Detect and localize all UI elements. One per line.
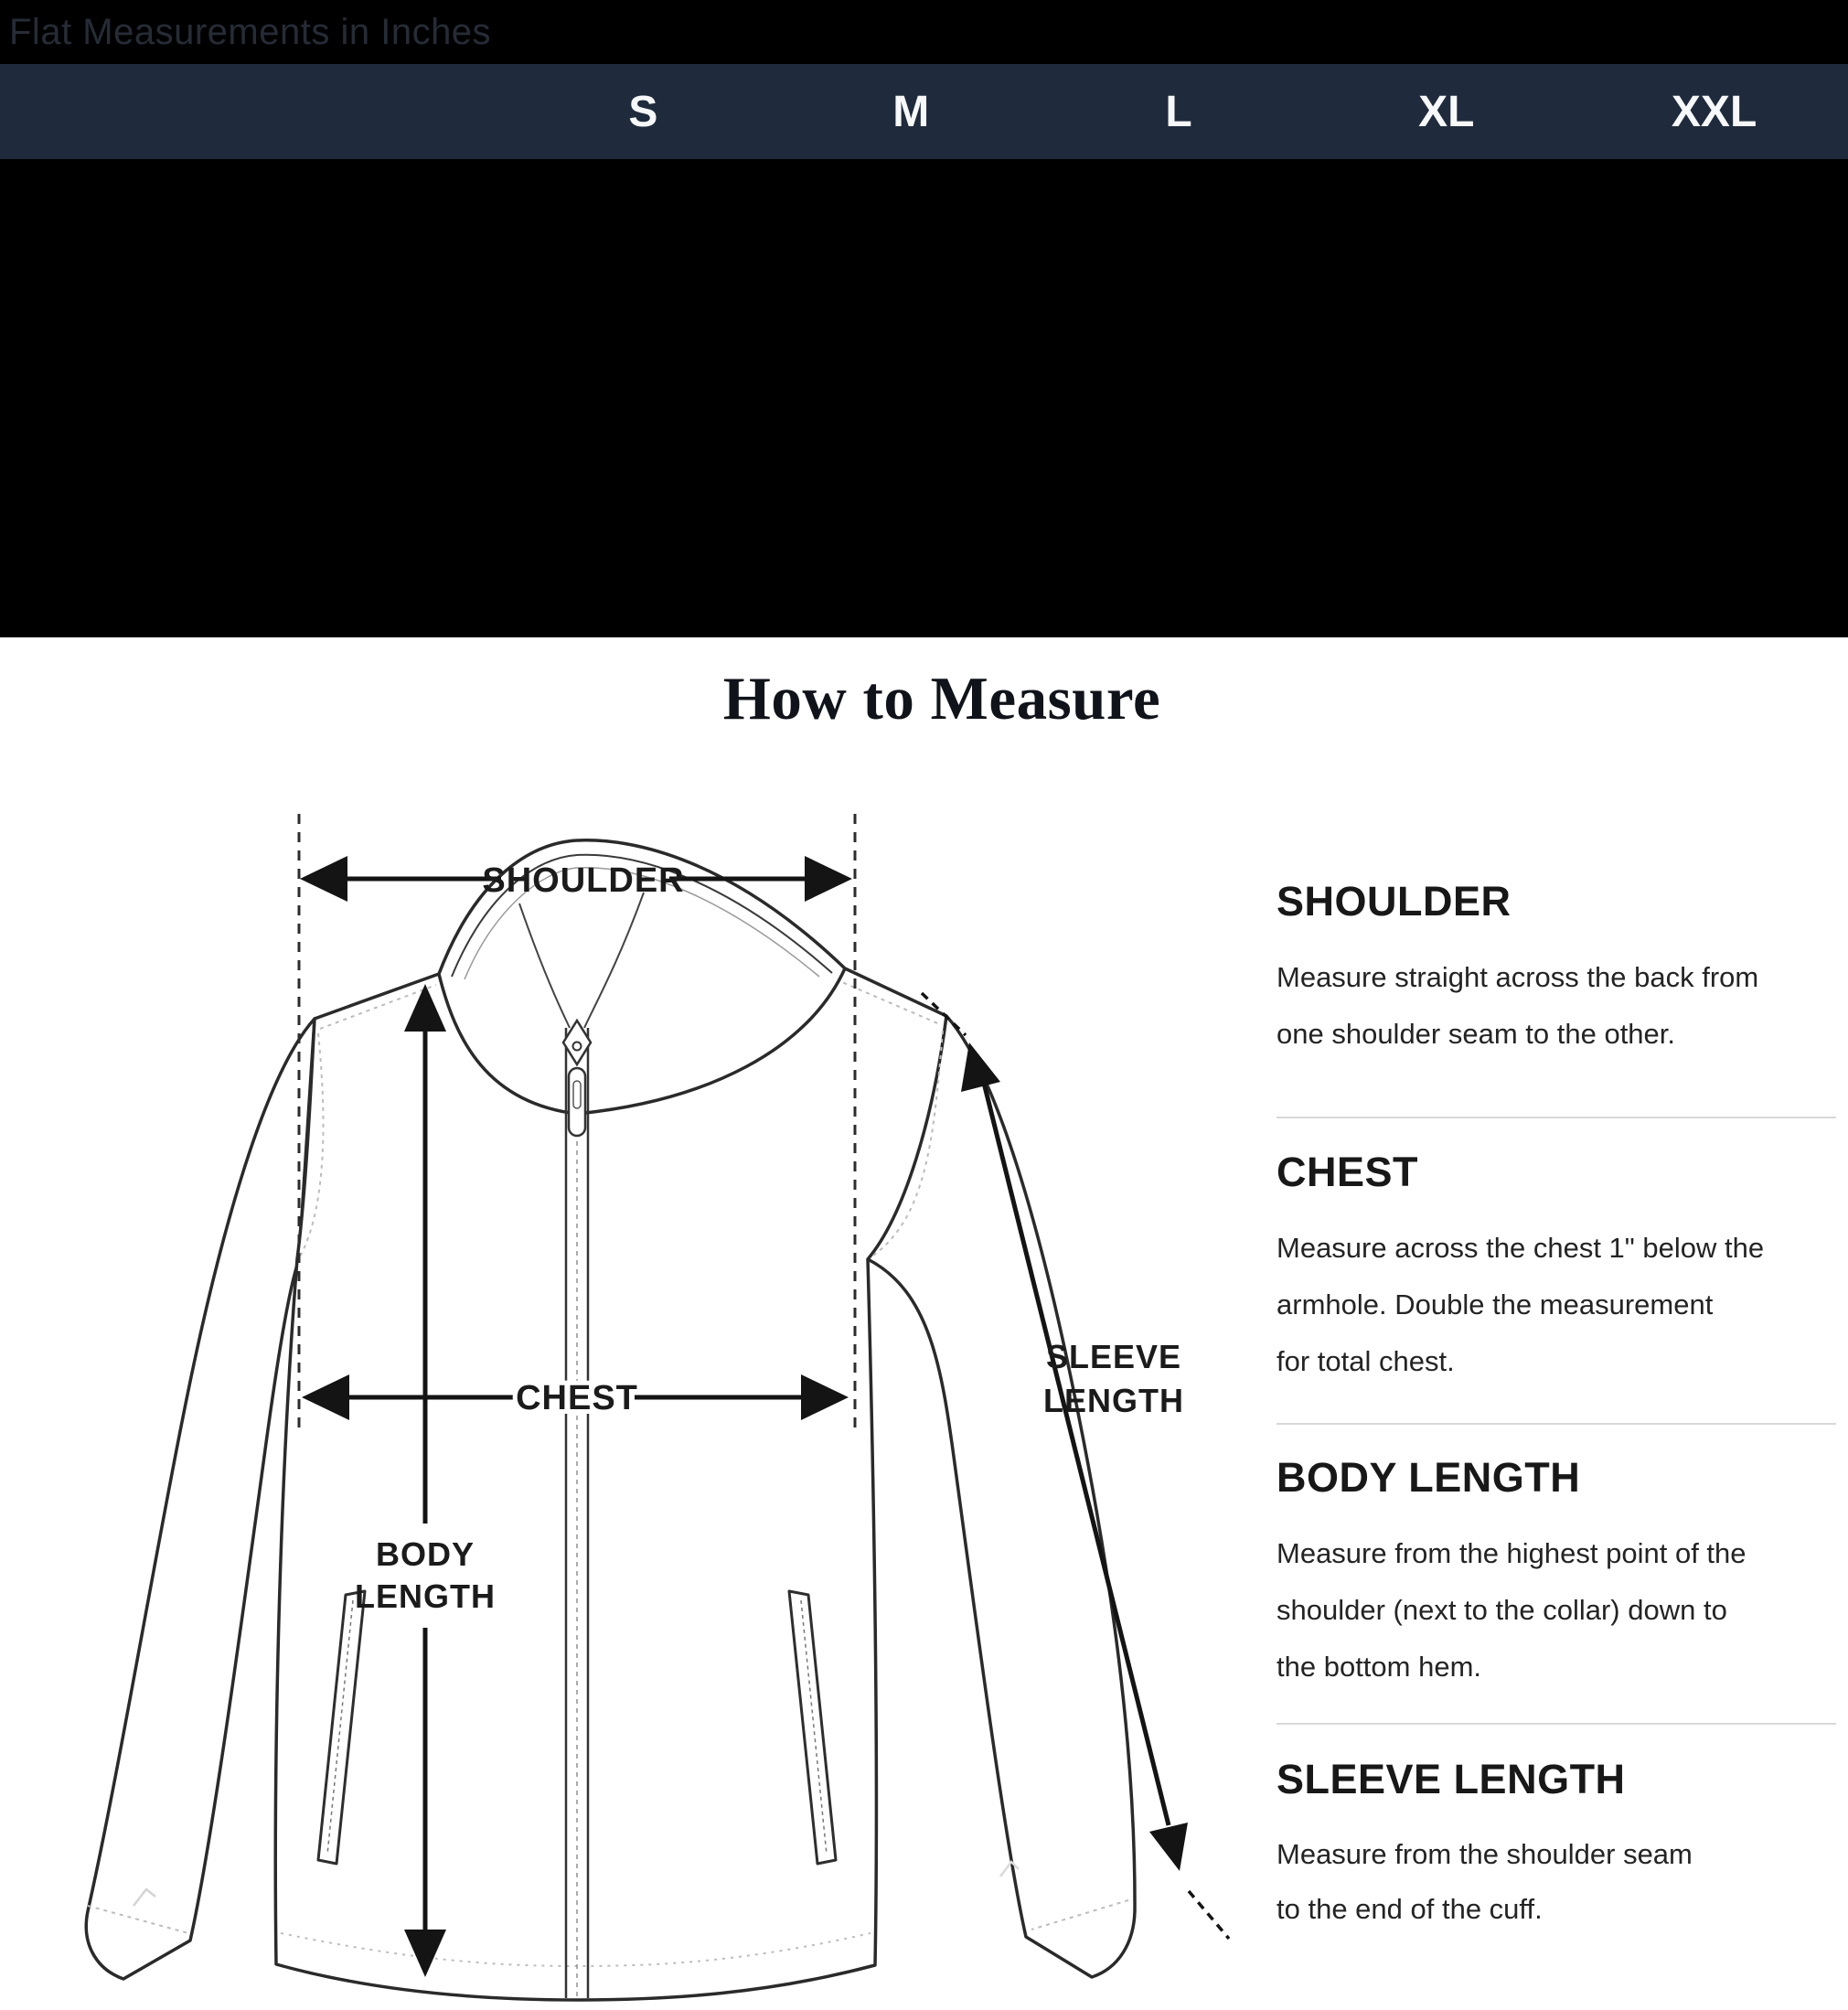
section-chest-heading: CHEST (1277, 1149, 1840, 1196)
zipper-pull-tab (569, 1068, 585, 1136)
chest-label: CHEST (516, 1379, 638, 1417)
size-col-l: L (1045, 87, 1313, 137)
section-body-length: BODY LENGTH Measure from the highest poi… (1277, 1454, 1840, 1695)
size-col-m: M (777, 87, 1045, 137)
jacket-diagram-svg: SHOULDER CHEST BODY LENGTH SLEEVE LENGTH (26, 757, 1269, 2010)
section-sleeve-length-heading: SLEEVE LENGTH (1277, 1756, 1840, 1803)
jacket-body (275, 968, 946, 2000)
body-length-label-line1: BODY (376, 1535, 475, 1573)
divider-2 (1277, 1423, 1836, 1425)
section-shoulder: SHOULDER Measure straight across the bac… (1277, 878, 1840, 1063)
size-table-header: S M L XL XXL (0, 64, 1848, 159)
section-sleeve-length: SLEEVE LENGTH Measure from the shoulder … (1277, 1756, 1840, 1937)
how-to-measure-title: How to Measure (0, 664, 1848, 734)
section-shoulder-heading: SHOULDER (1277, 878, 1840, 925)
size-table-body (0, 159, 1848, 637)
section-body-length-body: Measure from the highest point of the sh… (1277, 1525, 1840, 1695)
section-body-length-heading: BODY LENGTH (1277, 1454, 1840, 1502)
banner-label: Flat Measurements in Inches (9, 12, 491, 53)
section-shoulder-body: Measure straight across the back from on… (1277, 949, 1840, 1063)
shoulder-label: SHOULDER (482, 861, 684, 900)
sleeve-length-label-line1: SLEEVE (1046, 1338, 1181, 1375)
divider-3 (1277, 1723, 1836, 1725)
size-col-s: S (509, 87, 777, 137)
size-col-xxl: XXL (1580, 87, 1848, 137)
sleeve-length-label-line2: LENGTH (1043, 1382, 1184, 1419)
divider-1 (1277, 1117, 1836, 1118)
section-chest-body: Measure across the chest 1" below the ar… (1277, 1220, 1840, 1390)
size-col-xl: XL (1312, 87, 1580, 137)
section-sleeve-length-body: Measure from the shoulder seam to the en… (1277, 1827, 1840, 1937)
jacket-measurement-diagram: SHOULDER CHEST BODY LENGTH SLEEVE LENGTH (26, 757, 1269, 2010)
section-chest: CHEST Measure across the chest 1" below … (1277, 1149, 1840, 1390)
body-length-label-line2: LENGTH (355, 1577, 496, 1615)
top-banner: Flat Measurements in Inches (0, 0, 1848, 64)
